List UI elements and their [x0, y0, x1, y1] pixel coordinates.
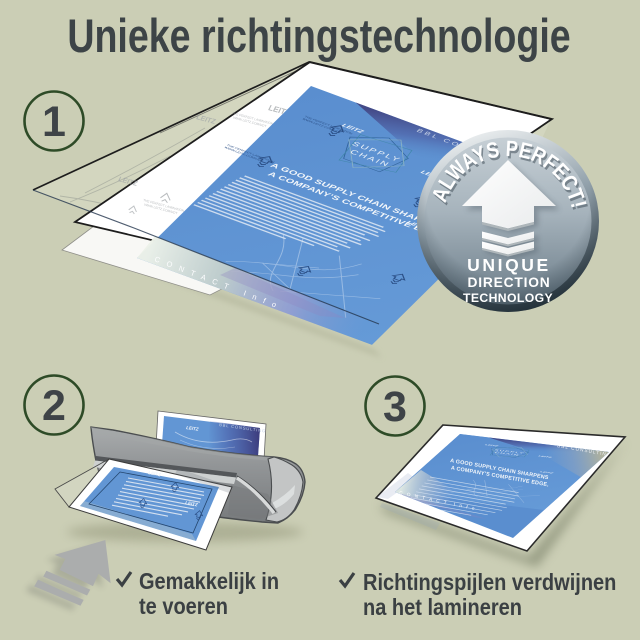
- svg-text:3: 3: [383, 383, 407, 431]
- svg-text:Unieke richtingstechnologie: Unieke richtingstechnologie: [67, 10, 570, 63]
- svg-text:2: 2: [42, 382, 66, 430]
- svg-text:DIRECTION: DIRECTION: [467, 275, 550, 290]
- svg-text:na het lamineren: na het lamineren: [363, 594, 522, 621]
- svg-text:1: 1: [42, 98, 66, 146]
- svg-text:Gemakkelijk in: Gemakkelijk in: [139, 568, 279, 595]
- svg-text:Richtingspijlen verdwijnen: Richtingspijlen verdwijnen: [363, 569, 616, 596]
- svg-text:UNIQUE: UNIQUE: [467, 255, 551, 275]
- svg-text:TECHNOLOGY: TECHNOLOGY: [463, 291, 553, 305]
- svg-text:te voeren: te voeren: [139, 593, 228, 620]
